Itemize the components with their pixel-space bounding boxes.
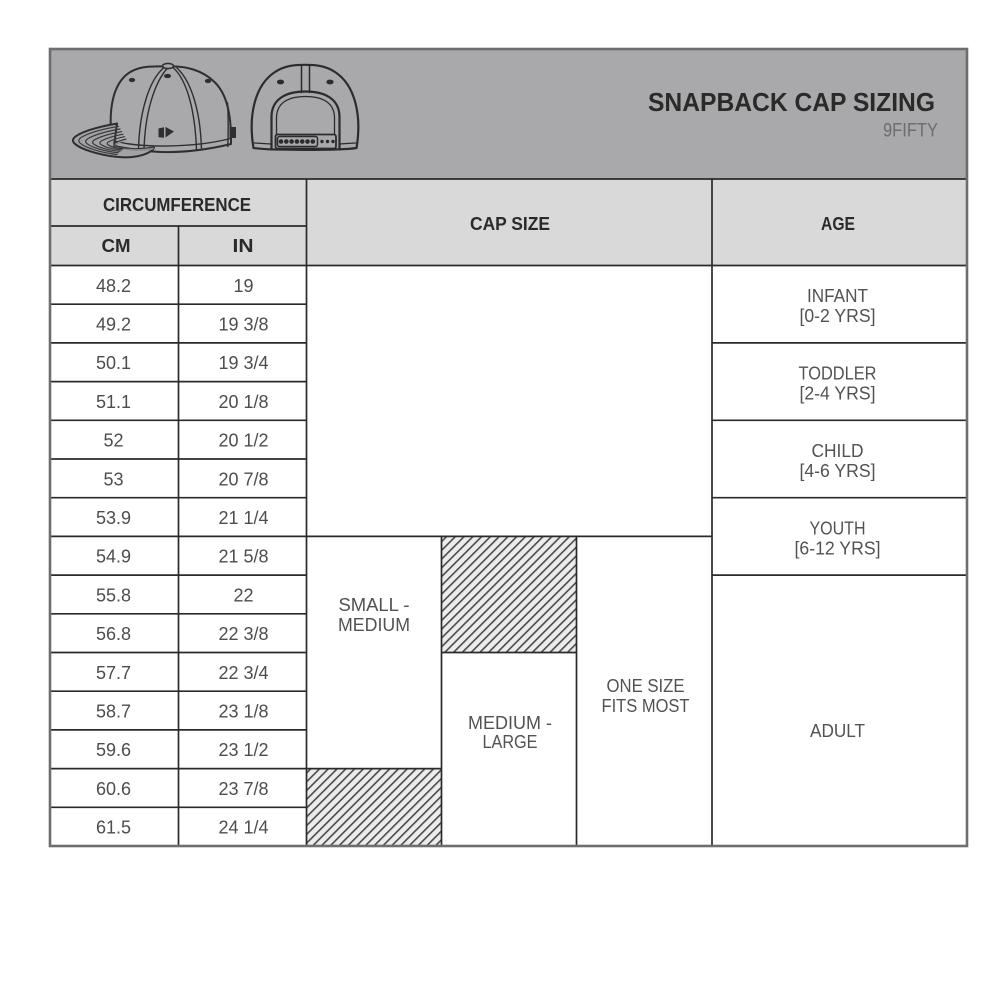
svg-text:23 1/2: 23 1/2 bbox=[218, 740, 268, 760]
svg-text:19: 19 bbox=[233, 276, 253, 296]
svg-text:MEDIUM: MEDIUM bbox=[338, 615, 410, 635]
svg-text:53: 53 bbox=[103, 469, 123, 489]
svg-text:20 1/8: 20 1/8 bbox=[218, 392, 268, 412]
svg-text:CHILD: CHILD bbox=[812, 441, 864, 461]
svg-text:22 3/4: 22 3/4 bbox=[218, 663, 268, 683]
svg-text:22 3/8: 22 3/8 bbox=[218, 624, 268, 644]
svg-text:CM: CM bbox=[102, 236, 131, 256]
svg-text:INFANT: INFANT bbox=[807, 286, 868, 306]
svg-text:55.8: 55.8 bbox=[96, 585, 131, 605]
svg-text:CAP SIZE: CAP SIZE bbox=[470, 214, 550, 234]
svg-text:51.1: 51.1 bbox=[96, 392, 131, 412]
svg-text:SMALL -: SMALL - bbox=[339, 595, 410, 615]
svg-text:21 5/8: 21 5/8 bbox=[218, 547, 268, 567]
svg-text:52: 52 bbox=[103, 431, 123, 451]
svg-text:TODDLER: TODDLER bbox=[799, 364, 877, 384]
svg-text:20 1/2: 20 1/2 bbox=[218, 431, 268, 451]
svg-text:59.6: 59.6 bbox=[96, 740, 131, 760]
svg-text:60.6: 60.6 bbox=[96, 779, 131, 799]
svg-text:24 1/4: 24 1/4 bbox=[218, 818, 268, 838]
svg-text:54.9: 54.9 bbox=[96, 547, 131, 567]
svg-text:53.9: 53.9 bbox=[96, 508, 131, 528]
svg-text:56.8: 56.8 bbox=[96, 624, 131, 644]
svg-text:SNAPBACK CAP SIZING: SNAPBACK CAP SIZING bbox=[648, 87, 935, 117]
svg-text:58.7: 58.7 bbox=[96, 702, 131, 722]
svg-text:ONE SIZE: ONE SIZE bbox=[607, 676, 685, 696]
svg-text:IN: IN bbox=[233, 236, 254, 256]
svg-text:[4-6 YRS]: [4-6 YRS] bbox=[800, 461, 876, 481]
svg-text:AGE: AGE bbox=[821, 214, 855, 234]
svg-text:LARGE: LARGE bbox=[483, 732, 538, 752]
svg-text:50.1: 50.1 bbox=[96, 353, 131, 373]
svg-text:9FIFTY: 9FIFTY bbox=[883, 121, 938, 142]
svg-text:MEDIUM -: MEDIUM - bbox=[468, 713, 552, 733]
svg-text:[2-4 YRS]: [2-4 YRS] bbox=[800, 384, 876, 404]
svg-text:57.7: 57.7 bbox=[96, 663, 131, 683]
svg-text:20 7/8: 20 7/8 bbox=[218, 469, 268, 489]
svg-text:48.2: 48.2 bbox=[96, 276, 131, 296]
svg-text:19 3/8: 19 3/8 bbox=[218, 315, 268, 335]
svg-text:YOUTH: YOUTH bbox=[810, 519, 866, 539]
svg-text:ADULT: ADULT bbox=[810, 721, 865, 741]
svg-text:21 1/4: 21 1/4 bbox=[218, 508, 268, 528]
svg-text:19 3/4: 19 3/4 bbox=[218, 353, 268, 373]
svg-text:[0-2 YRS]: [0-2 YRS] bbox=[800, 306, 876, 326]
svg-text:22: 22 bbox=[233, 585, 253, 605]
svg-text:CIRCUMFERENCE: CIRCUMFERENCE bbox=[103, 195, 251, 215]
svg-text:23 1/8: 23 1/8 bbox=[218, 702, 268, 722]
svg-text:49.2: 49.2 bbox=[96, 315, 131, 335]
svg-text:[6-12 YRS]: [6-12 YRS] bbox=[795, 539, 881, 559]
svg-text:23 7/8: 23 7/8 bbox=[218, 779, 268, 799]
svg-text:61.5: 61.5 bbox=[96, 818, 131, 838]
svg-text:FITS MOST: FITS MOST bbox=[602, 696, 690, 716]
